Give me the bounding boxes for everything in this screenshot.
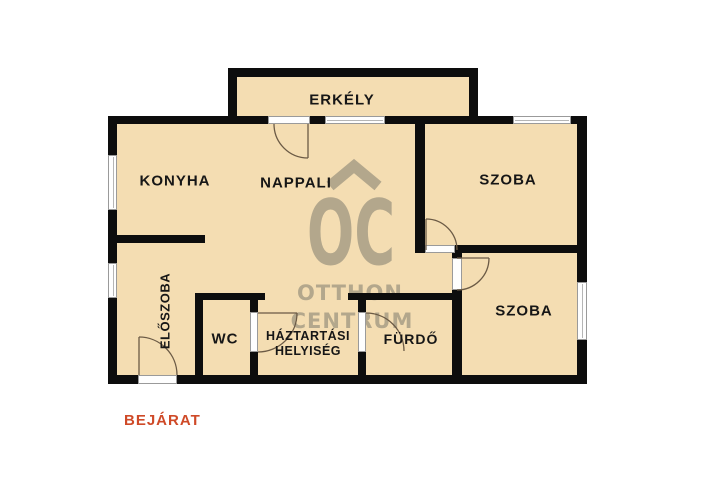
room-label-room2: SZOBA	[495, 303, 553, 320]
room-label-hall: ELŐSZOBA	[158, 273, 173, 349]
room-label-utility-line1: HÁZTARTÁSI	[266, 329, 350, 344]
entrance-label: BEJÁRAT	[124, 412, 201, 429]
room-label-utility: HÁZTARTÁSI HELYISÉG	[266, 329, 350, 359]
room-label-living: NAPPALI	[260, 175, 332, 192]
room-label-room1: SZOBA	[479, 172, 537, 189]
room-label-wc: WC	[212, 331, 239, 348]
room-label-balcony: ERKÉLY	[309, 92, 374, 109]
room-label-bathroom: FÜRDŐ	[384, 331, 439, 347]
door-swing-arc-room1	[426, 219, 457, 250]
door-swing-arc-balcony	[274, 124, 308, 158]
room-label-utility-line2: HELYISÉG	[266, 344, 350, 359]
door-swing-arc-room2	[457, 258, 489, 290]
floorplan: OC OTTHON CENTRUM	[0, 0, 701, 500]
door-swing-arcs	[0, 0, 701, 500]
room-label-kitchen: KONYHA	[139, 173, 210, 190]
